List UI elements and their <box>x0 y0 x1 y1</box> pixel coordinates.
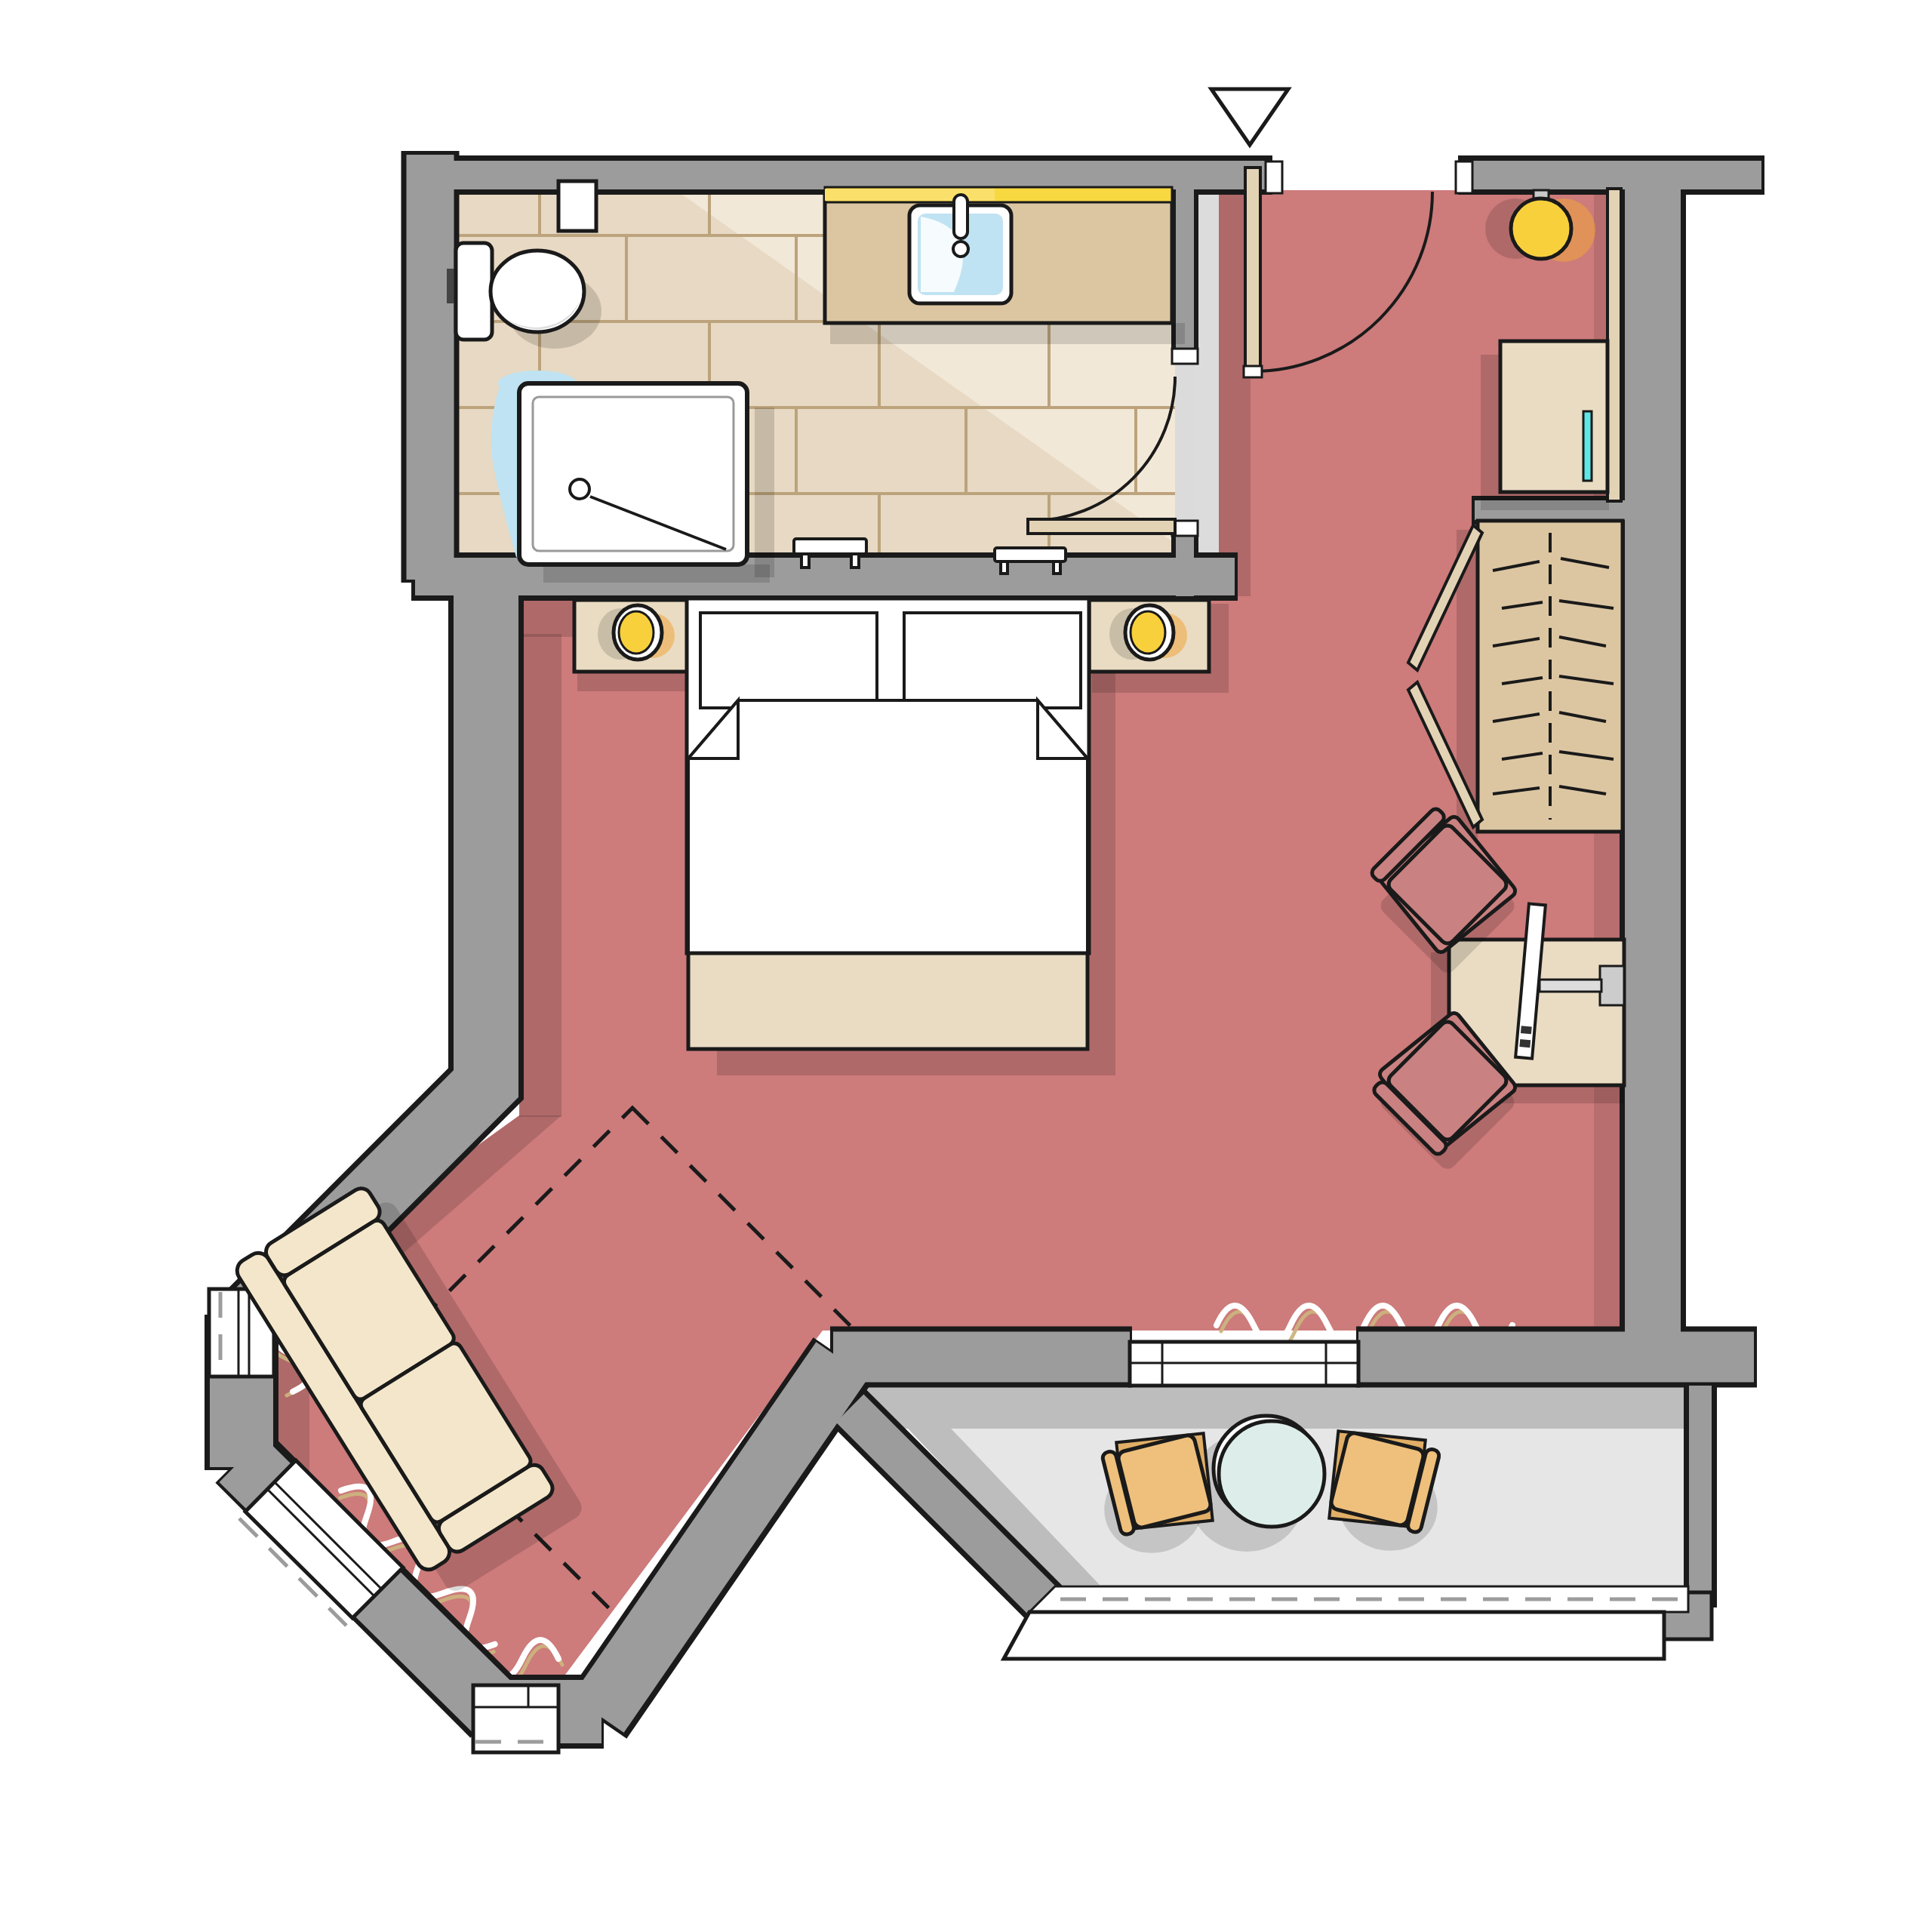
pillow-left <box>700 613 877 708</box>
pendant-lamp-bulb <box>1511 198 1571 259</box>
pillow-right <box>904 613 1081 708</box>
wall-panel <box>1607 189 1621 501</box>
foot-bench <box>688 953 1088 1049</box>
shower-drain <box>570 479 589 499</box>
bay-window-bottom <box>473 1685 558 1752</box>
toilet-tank <box>456 243 492 340</box>
bathroom-door-leaf <box>1028 519 1175 534</box>
floorplan-svg: Hotel guest room floor plan (top view) <box>0 0 1932 1932</box>
shower <box>491 371 774 583</box>
entry-door-leaf <box>1245 168 1260 368</box>
faucet-icon <box>953 195 968 257</box>
entrance-marker-icon <box>1211 89 1288 145</box>
floorplan-stage: Hotel guest room floor plan (top view) <box>0 0 1932 1932</box>
shower-tray <box>519 383 747 565</box>
balcony-railing <box>1004 1586 1688 1659</box>
vanity <box>825 187 1185 344</box>
toilet-bowl <box>491 251 584 332</box>
console-accent <box>1583 411 1592 481</box>
sliding-door <box>1130 1342 1358 1386</box>
console-table <box>1481 341 1609 510</box>
wall-niche <box>558 181 596 231</box>
duvet <box>688 700 1088 953</box>
